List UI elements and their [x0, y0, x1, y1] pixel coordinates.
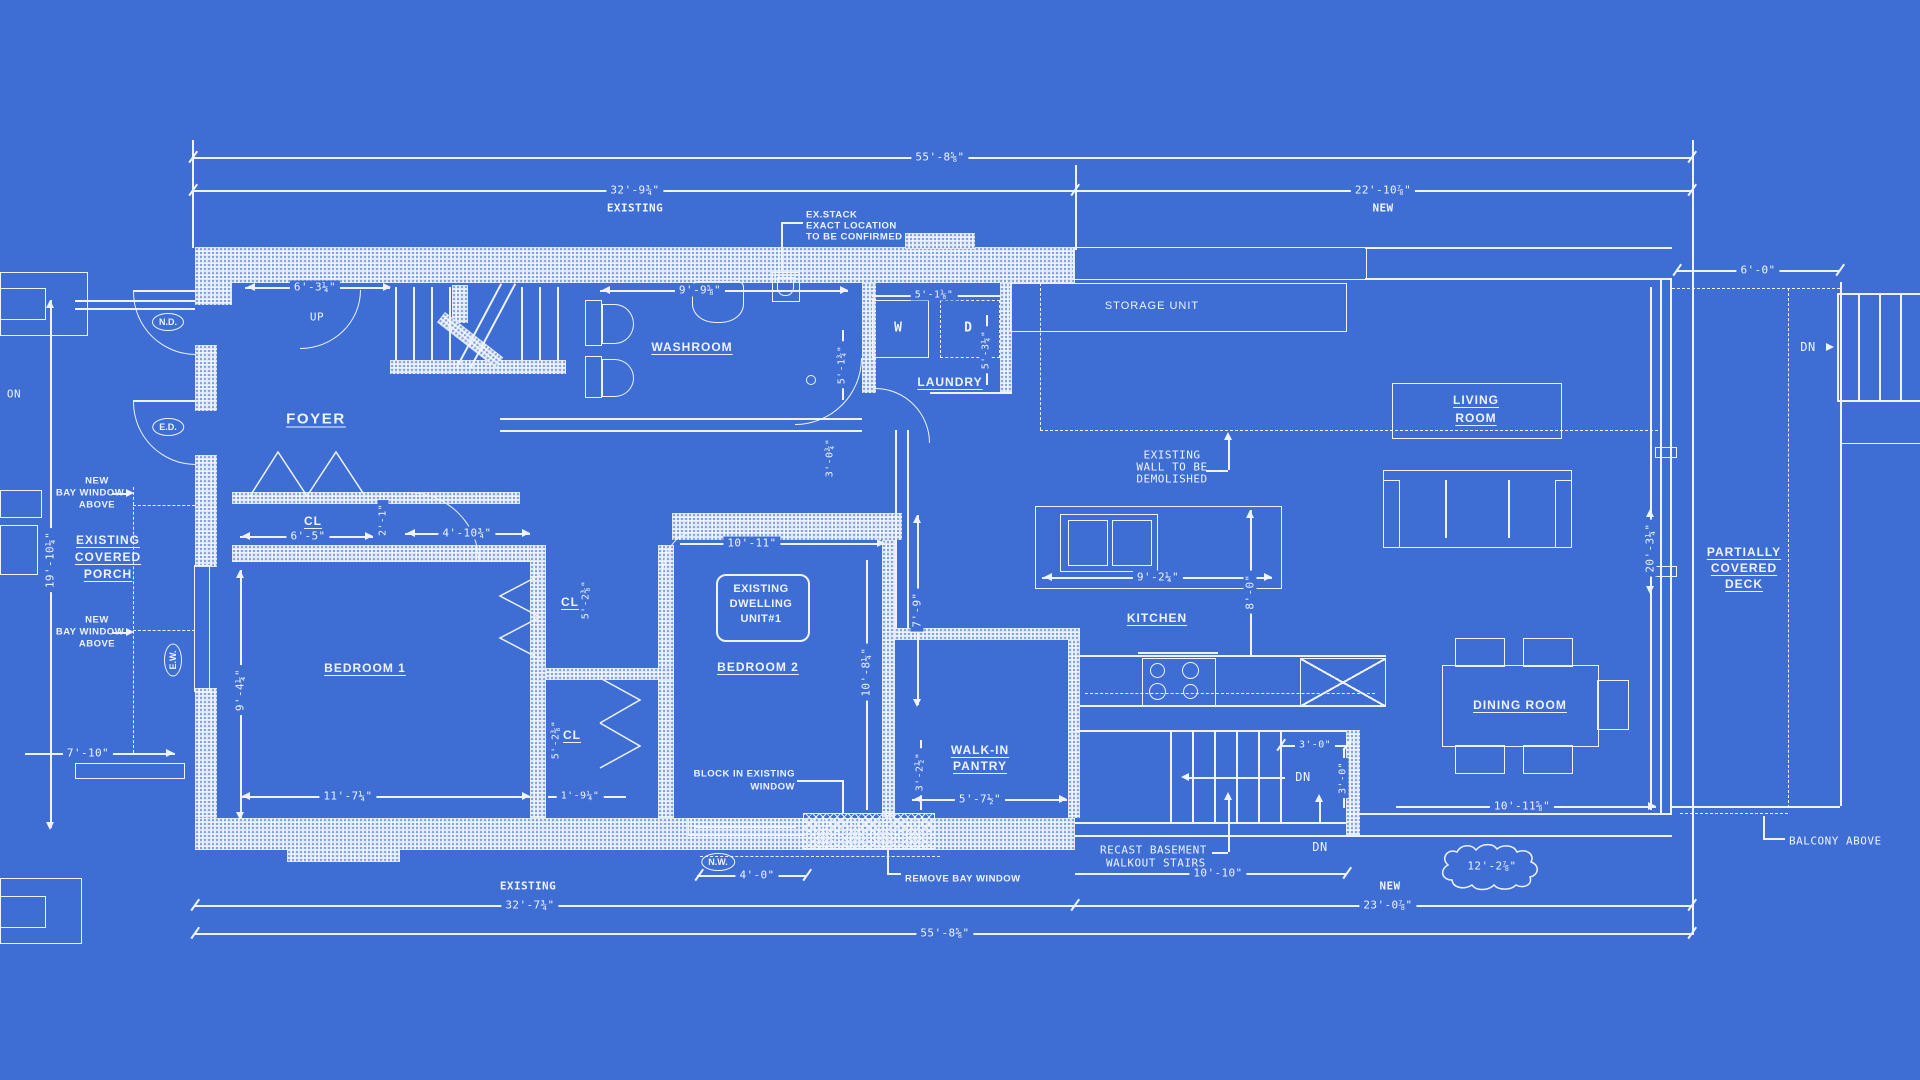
block-leader-v — [842, 780, 844, 813]
dim-porch-h: 19'-10¼" — [44, 528, 57, 592]
dining-chair — [1523, 638, 1573, 667]
deck-right-edge — [1840, 282, 1842, 806]
wall-left-seg4 — [195, 688, 217, 820]
stair-tread — [539, 287, 541, 360]
removed-bay-outline — [700, 856, 940, 857]
stair-tread — [449, 287, 451, 360]
toilet-tank-2 — [585, 356, 602, 398]
dining-chair — [1455, 638, 1505, 667]
note-removebay: REMOVE BAY WINDOW — [905, 874, 1021, 885]
note-bay2-2: BAY WINDOW — [56, 627, 124, 638]
dim-wing-h: 20'-3¼" — [1644, 519, 1657, 576]
arrow — [403, 529, 415, 537]
stairs-up-label: UP — [310, 311, 324, 324]
dim-cl-w: 6'-5" — [286, 530, 329, 543]
bstairs-direction-arrow — [1177, 773, 1189, 781]
bstairs-direction-line — [1185, 777, 1285, 779]
arrow — [126, 628, 138, 636]
dim-corridor-h: 7'-9" — [911, 588, 924, 631]
balcony-dashed-line — [1680, 813, 1788, 814]
dining-chair — [1455, 745, 1505, 774]
dining-chair — [1523, 745, 1573, 774]
demo-leader-h — [1206, 470, 1228, 472]
dim-bot-new: 23'-0⅞" — [1359, 899, 1416, 912]
room-dining: DINING ROOM — [1473, 698, 1567, 712]
porch-step-bottom-inner — [0, 896, 46, 928]
dim-bed2-w: 10'-11" — [723, 537, 780, 550]
dim-bot-total: 55'-8⅝" — [916, 927, 973, 940]
stair-tread — [521, 287, 523, 360]
stair-tread — [431, 287, 433, 360]
wall-bed1-top — [232, 545, 532, 562]
island-sink-basin2 — [1112, 520, 1152, 566]
dim-top-total: 55'-8⅝" — [911, 151, 968, 164]
wall-stair-bottom — [390, 360, 566, 374]
deck-dashed-line — [1788, 288, 1789, 808]
dim-top-exist: 32'-9¾" — [606, 184, 663, 197]
porch-window-left — [75, 763, 185, 779]
toilet-bowl-1 — [602, 304, 634, 344]
dim-bay-w: 4'-0" — [735, 869, 778, 882]
dim-cl-small: 2'-1" — [378, 500, 389, 540]
wall-top — [195, 247, 1075, 283]
dim-porch-w: 7'-10" — [63, 747, 113, 760]
recast-leader-h — [1212, 852, 1228, 854]
window-sill-1 — [1655, 447, 1677, 458]
deck-stair-tread — [1900, 293, 1902, 400]
room-living-2: ROOM — [1455, 411, 1496, 425]
arrow — [126, 489, 138, 497]
dim-cl1-h: 5'-2⅜" — [581, 577, 592, 624]
dim-laundry-h: 5'-3¼" — [981, 327, 992, 374]
bed2-door-arc — [662, 532, 693, 577]
dryer-label: D — [964, 321, 972, 336]
dim-cloud: 12'-2⅞" — [1467, 860, 1516, 873]
wing-top-line2 — [1365, 278, 1672, 280]
stack-inner — [777, 277, 794, 296]
arrow — [1246, 506, 1254, 518]
room-storage: STORAGE UNIT — [1105, 300, 1199, 312]
room-porch-1: EXISTING — [76, 533, 140, 547]
room-kitchen: KITCHEN — [1127, 611, 1187, 625]
room-laundry: LAUNDRY — [917, 375, 982, 389]
note-balcony: BALCONY ABOVE — [1789, 835, 1882, 848]
dim-top-exist-sub: EXISTING — [607, 202, 663, 215]
dim-kitchen-h: 8'-0" — [1244, 570, 1257, 613]
deck-stair-tread — [1858, 293, 1860, 400]
washroom-door-arc — [795, 358, 862, 425]
arrow — [1224, 428, 1232, 440]
dim-bed1-h: 9'-4¼" — [234, 665, 247, 715]
wall-right-inner — [1670, 278, 1672, 813]
dn-fragment: ON — [7, 388, 21, 401]
arrow — [522, 792, 534, 800]
stair-tread — [557, 287, 559, 360]
foyer-closet-doors — [250, 452, 365, 496]
porch-top-line2 — [75, 308, 195, 310]
demo-leader-v — [1228, 436, 1230, 470]
corridor-wall-line2 — [907, 430, 909, 628]
unit-line-1: EXISTING — [733, 583, 788, 595]
arrow — [598, 286, 610, 294]
deck-dn-label: DN — [1800, 340, 1815, 354]
parapet-band — [1073, 247, 1367, 280]
note-exstack-1: EX.STACK — [806, 210, 857, 221]
blueprint-floor-plan: 55'-8⅝" 32'-9¾" EXISTING 22'-10⅞" NEW EX… — [0, 0, 1920, 1080]
balcony-leader-h — [1763, 838, 1785, 840]
bstair-tread — [1170, 730, 1172, 822]
arrow — [383, 283, 395, 291]
arrow — [166, 749, 178, 757]
arrow — [1646, 586, 1654, 598]
sofa-outline — [1383, 470, 1572, 548]
dim-hall-v: 3'-0¾" — [825, 435, 836, 482]
ew-window-frame — [194, 565, 210, 692]
note-recast-1: RECAST BASEMENT — [1100, 844, 1207, 857]
closet-label-3: CL — [563, 728, 581, 742]
stair-tread — [413, 287, 415, 360]
dim-landing-h: 3'-0" — [1338, 758, 1349, 798]
dishwasher-x-box — [1300, 658, 1386, 707]
room-bed2: BEDROOM 2 — [717, 660, 799, 674]
bstair-tread — [1192, 730, 1194, 822]
arrow — [913, 511, 921, 523]
closet-label-2: CL — [561, 595, 579, 609]
stack-leader-h — [781, 222, 803, 224]
note-block-2: WINDOW — [750, 782, 795, 793]
arrow — [910, 795, 922, 803]
bstair-tread — [1258, 730, 1260, 822]
deck-stair-tread — [1879, 293, 1881, 400]
arrow — [243, 283, 255, 291]
arrow — [46, 822, 54, 834]
arrow — [236, 812, 244, 824]
wall-bed2-left — [658, 545, 674, 818]
dim-bot-new-sub: NEW — [1379, 880, 1400, 893]
toilet-tank-1 — [585, 300, 602, 346]
wall-bottom — [195, 818, 1075, 850]
recast-leader-v — [1228, 795, 1230, 852]
note-bay1-3: ABOVE — [79, 500, 115, 511]
toilet-bowl-2 — [602, 359, 634, 397]
arrow — [1059, 795, 1071, 803]
unit-line-3: UNIT#1 — [741, 613, 782, 625]
room-pantry-1: WALK-IN — [951, 743, 1009, 757]
new-window-glass — [694, 826, 796, 828]
stack-leader-v — [781, 222, 783, 270]
dim-wash-h: 5'-1¾" — [837, 342, 848, 389]
wall-bed2-right — [882, 540, 895, 818]
arrow — [1264, 573, 1276, 581]
arrow — [1224, 788, 1232, 800]
blocked-window-hatch — [803, 813, 935, 849]
dim-line-bed2-w — [680, 543, 885, 545]
bay-dashed-h1 — [133, 505, 195, 506]
room-bed1: BEDROOM 1 — [324, 661, 406, 675]
room-foyer: FOYER — [286, 411, 346, 428]
stove-burner — [1150, 663, 1165, 678]
island-sink-basin1 — [1068, 520, 1108, 566]
bstairs-dn-label-2: DN — [1312, 840, 1327, 854]
dim-cl2-h: 5'-2⅜" — [551, 717, 562, 764]
demolished-wall-vert — [1040, 283, 1041, 430]
dim-pantry-v: 3'-2½" — [915, 749, 926, 796]
ext-line-mid — [1075, 165, 1077, 250]
wall-bottom-bump — [287, 850, 400, 862]
closet1-doors — [500, 575, 540, 659]
deck-stair-landing — [1840, 400, 1920, 444]
bstairs-dn-label-1: DN — [1295, 770, 1310, 784]
bstair-tread — [1214, 730, 1216, 822]
unit-line-2: DWELLING — [730, 598, 793, 610]
arrow — [877, 539, 889, 547]
dim-bot-exist-sub: EXISTING — [500, 880, 556, 893]
arrow — [1826, 343, 1838, 351]
arrow — [840, 286, 852, 294]
wall-left-seg3 — [195, 455, 217, 567]
room-living-1: LIVING — [1453, 393, 1499, 407]
stair-tread — [395, 287, 397, 360]
arrow — [522, 529, 534, 537]
dim-island-w: 9'-2¼" — [1133, 571, 1183, 584]
removebay-leader-h — [887, 873, 901, 875]
stove-burner — [1182, 662, 1199, 679]
existing-door-marker: E.D. — [152, 418, 184, 436]
dim-bed1-w: 11'-7¼" — [319, 790, 376, 803]
bstairs-bottom — [1075, 822, 1346, 824]
bstairs-up-arrow — [1315, 790, 1323, 802]
arrow — [913, 699, 921, 711]
arrow — [238, 532, 250, 540]
room-pantry-2: PANTRY — [953, 759, 1007, 773]
dim-deck-w: 6'-0" — [1736, 264, 1779, 277]
removebay-leader — [887, 850, 889, 874]
laundry-bottom-line — [930, 392, 1012, 394]
chimney-bump — [905, 233, 975, 249]
bstair-tread — [1236, 730, 1238, 822]
balcony-leader-v — [1763, 816, 1765, 838]
new-door-marker: N.D. — [152, 313, 184, 331]
window-sill-2 — [1655, 566, 1677, 577]
note-demo-3: DEMOLISHED — [1136, 473, 1207, 486]
deck-top-edge — [1672, 288, 1840, 289]
wall-pantry-right — [1068, 640, 1080, 818]
note-bay2-1: NEW — [85, 615, 109, 626]
sofa-arm-right — [1555, 480, 1572, 548]
room-porch-3: PORCH — [84, 567, 132, 581]
bay-dashed-vert — [133, 487, 134, 753]
sofa-cushion-divider — [1445, 480, 1447, 538]
dim-line-bottom-upper — [195, 905, 1692, 907]
bay-dashed-h2 — [133, 630, 195, 631]
sofa-cushion-divider — [1508, 480, 1510, 538]
porch-edge-box — [0, 490, 42, 518]
wall-bed2-top — [672, 513, 902, 540]
counter-top-line — [1080, 655, 1386, 657]
stove-ledge — [1138, 652, 1218, 654]
porch-top-line1 — [75, 300, 195, 302]
room-deck-2: COVERED — [1711, 561, 1777, 575]
dim-wash-w: 9'-9⅝" — [675, 284, 725, 297]
closet-label-1: CL — [304, 514, 322, 528]
wing-bottom-line2 — [1075, 835, 1672, 837]
note-exstack-2: EXACT LOCATION — [806, 221, 897, 232]
note-bay1-1: NEW — [85, 476, 109, 487]
laundry-door-arc — [875, 388, 930, 443]
arrow — [1646, 505, 1654, 517]
dim-wd-w: 5'-1⅛" — [911, 290, 958, 301]
dim-top-new: 22'-10⅞" — [1351, 184, 1415, 197]
bstairs-top — [1075, 730, 1346, 732]
arrow — [46, 296, 54, 308]
washroom-bottom-line2 — [500, 430, 862, 432]
porch-step-top-inner — [0, 288, 46, 320]
dim-hall-foyer: 4'-10¾" — [438, 527, 495, 540]
note-exstack-3: TO BE CONFIRMED — [806, 232, 903, 243]
dim-top-new-sub: NEW — [1372, 202, 1393, 215]
wall-foyer-stub — [452, 285, 468, 323]
room-deck-3: DECK — [1725, 577, 1763, 591]
sofa-arm-left — [1383, 480, 1400, 548]
dining-chair — [1597, 680, 1629, 730]
arrow — [238, 792, 250, 800]
dim-pantry-w: 5'-7½" — [955, 793, 1005, 806]
corridor-wall-line1 — [895, 430, 897, 628]
washer-label: W — [894, 321, 902, 336]
room-washroom: WASHROOM — [651, 340, 732, 354]
wing-bottom-line1 — [1346, 813, 1672, 815]
arrow — [1040, 573, 1052, 581]
wall-left-seg2 — [195, 345, 217, 411]
dim-bot-exist: 32'-7¾" — [501, 899, 558, 912]
deck-bottom-edge — [1672, 806, 1840, 808]
arrow — [236, 566, 244, 578]
wall-right-outer — [1660, 278, 1662, 813]
existing-window-marker: E.W. — [164, 643, 182, 676]
note-bay2-3: ABOVE — [79, 639, 115, 650]
room-porch-2: COVERED — [75, 550, 141, 564]
dim-dining-w: 10'-11⅝" — [1490, 800, 1554, 813]
new-window-marker: N.W. — [701, 853, 735, 871]
dim-cl-bottom: 1'-9¼" — [557, 791, 604, 802]
arrow — [1648, 802, 1660, 810]
dim-landing-w: 3'-0" — [1295, 740, 1335, 751]
note-recast-2: WALKOUT STAIRS — [1106, 857, 1206, 870]
block-leader-h — [797, 780, 843, 782]
wing-top-line1 — [1365, 247, 1672, 249]
stove-burner — [1183, 684, 1198, 699]
note-bay1-2: BAY WINDOW — [56, 488, 124, 499]
dim-bed2-h: 10'-8¼" — [860, 643, 873, 700]
arrow — [365, 532, 377, 540]
porch-step-mid — [0, 525, 38, 575]
wall-left-seg1 — [195, 247, 232, 305]
note-block-1: BLOCK IN EXISTING — [694, 769, 795, 780]
closet2-doors — [600, 678, 640, 768]
stove-burner — [1149, 683, 1166, 700]
dim-foyer-w: 6'-3¼" — [290, 281, 340, 294]
dim-line-bed1-w — [240, 796, 530, 798]
room-deck-1: PARTIALLY — [1707, 545, 1781, 559]
ext-line-right — [1692, 140, 1694, 935]
demolished-wall-line — [1040, 430, 1658, 431]
